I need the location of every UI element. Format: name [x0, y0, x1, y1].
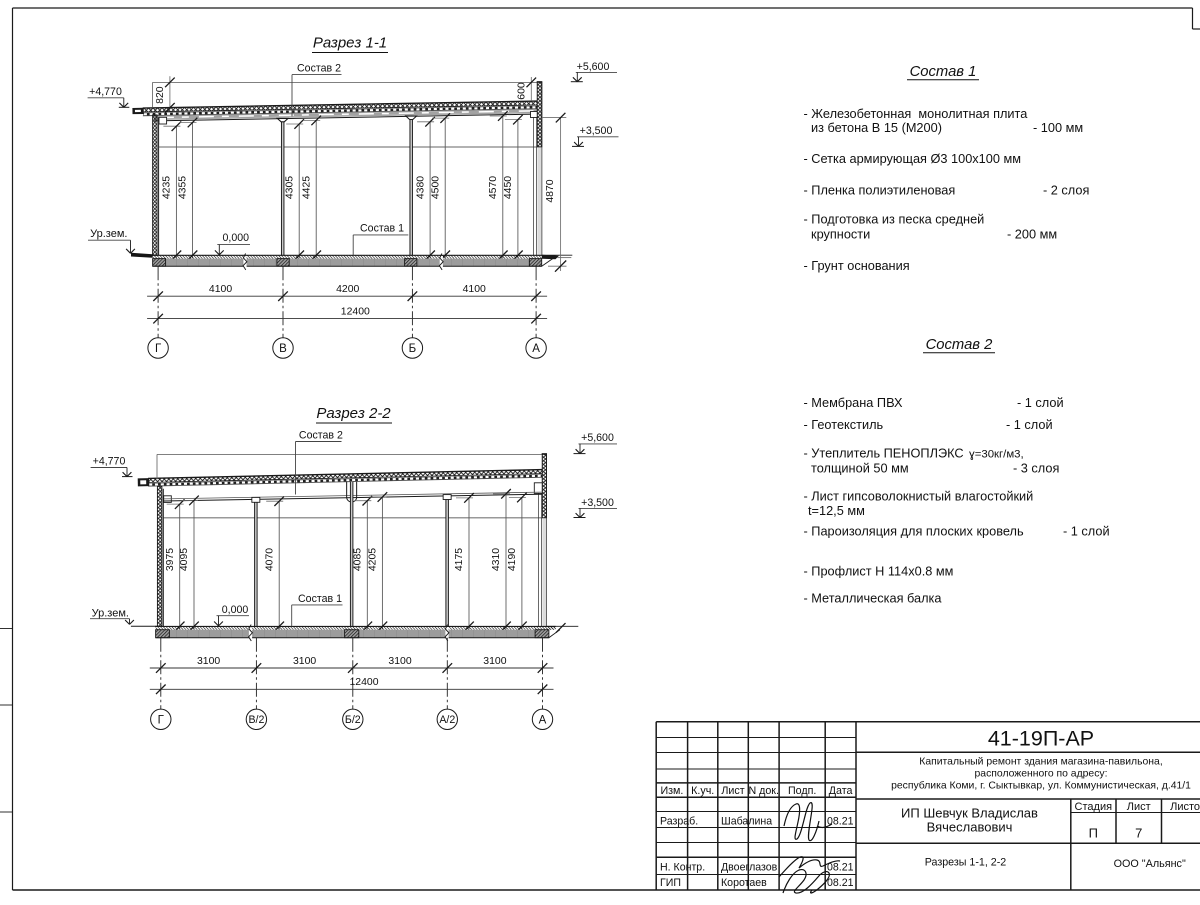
svg-text:3975: 3975: [165, 548, 176, 571]
svg-text:из бетона В 15 (М200): из бетона В 15 (М200): [811, 120, 942, 135]
svg-text:Состав 1: Состав 1: [360, 222, 404, 234]
svg-text:ГИП: ГИП: [660, 877, 681, 889]
svg-text:К.уч.: К.уч.: [691, 785, 714, 797]
svg-text:4200: 4200: [336, 284, 359, 295]
svg-text:расположенного по адресу:: расположенного по адресу:: [975, 769, 1108, 780]
svg-text:Вячеславович: Вячеславович: [927, 820, 1013, 835]
svg-text:08.21: 08.21: [827, 877, 854, 889]
svg-text:- 100 мм: - 100 мм: [1033, 120, 1083, 135]
svg-text:- Пароизоляция для плоских кро: - Пароизоляция для плоских кровель: [804, 524, 1024, 539]
svg-text:Состав 2: Состав 2: [926, 337, 994, 353]
svg-text:Разрез 1-1: Разрез 1-1: [313, 35, 387, 52]
svg-text:Г: Г: [155, 343, 162, 355]
svg-text:ООО "Альянс": ООО "Альянс": [1114, 858, 1186, 870]
svg-text:- Сетка армирующая Ø3 100х100: - Сетка армирующая Ø3 100х100 мм: [804, 151, 1022, 166]
svg-text:- Грунт основания: - Грунт основания: [804, 258, 910, 273]
svg-text:Ур.зем.: Ур.зем.: [90, 228, 127, 240]
svg-text:Б/2: Б/2: [345, 714, 361, 726]
svg-text:4095: 4095: [179, 548, 190, 571]
svg-text:- Подготовка из песка средней: - Подготовка из песка средней: [804, 212, 985, 227]
svg-text:- Профлист Н 114х0.8 мм: - Профлист Н 114х0.8 мм: [804, 564, 954, 579]
svg-text:Лист: Лист: [721, 785, 744, 797]
svg-text:4305: 4305: [284, 176, 295, 199]
svg-text:4380: 4380: [415, 176, 426, 199]
svg-text:+5,600: +5,600: [581, 432, 614, 444]
svg-text:3100: 3100: [483, 656, 506, 667]
svg-text:Шабалина: Шабалина: [721, 815, 772, 827]
svg-text:Подп.: Подп.: [788, 785, 816, 797]
svg-text:3100: 3100: [293, 656, 316, 667]
svg-text:+4,770: +4,770: [89, 86, 122, 98]
svg-text:7: 7: [1135, 826, 1142, 841]
svg-text:- 2 слоя: - 2 слоя: [1043, 183, 1089, 198]
svg-text:- Утеплитель ПЕНОПЛЭКС: - Утеплитель ПЕНОПЛЭКС: [804, 446, 964, 461]
svg-text:Состав 2: Состав 2: [299, 430, 343, 442]
svg-text:- 1 слой: - 1 слой: [1063, 524, 1110, 539]
svg-text:Коротаев: Коротаев: [721, 877, 767, 889]
svg-text:- Геотекстиль: - Геотекстиль: [804, 417, 884, 432]
svg-text:- 200 мм: - 200 мм: [1007, 227, 1057, 242]
svg-text:П: П: [1089, 826, 1098, 841]
svg-text:крупности: крупности: [811, 227, 870, 242]
svg-text:4870: 4870: [545, 179, 556, 202]
svg-text:600: 600: [517, 82, 528, 100]
svg-text:41-19П-АР: 41-19П-АР: [988, 727, 1094, 751]
svg-text:Состав 1: Состав 1: [298, 593, 342, 605]
svg-text:А/2: А/2: [439, 714, 455, 726]
svg-text:0,000: 0,000: [223, 232, 250, 244]
svg-text:Разрезы 1-1, 2-2: Разрезы 1-1, 2-2: [925, 857, 1007, 869]
svg-text:+3,500: +3,500: [581, 497, 614, 509]
svg-text:ИП Шевчук Владислав: ИП Шевчук Владислав: [901, 806, 1038, 821]
svg-text:4085: 4085: [353, 548, 364, 571]
svg-text:Дата: Дата: [829, 785, 853, 797]
svg-text:Изм.: Изм.: [660, 785, 683, 797]
svg-text:Листов: Листов: [1170, 801, 1200, 813]
svg-text:N док.: N док.: [748, 785, 779, 797]
svg-text:4310: 4310: [491, 548, 502, 571]
svg-text:Стадия: Стадия: [1075, 801, 1113, 813]
svg-text:4190: 4190: [507, 548, 518, 571]
svg-text:4355: 4355: [178, 176, 189, 199]
svg-text:республика Коми, г. Сыктывкар,: республика Коми, г. Сыктывкар, ул. Комму…: [891, 780, 1191, 792]
svg-text:t=12,5 мм: t=12,5 мм: [808, 503, 865, 518]
svg-text:3100: 3100: [197, 656, 220, 667]
svg-text:+3,500: +3,500: [580, 125, 613, 137]
svg-text:4425: 4425: [301, 176, 312, 199]
svg-text:12400: 12400: [341, 306, 370, 317]
svg-text:Г: Г: [158, 714, 165, 726]
svg-text:А: А: [532, 343, 540, 355]
svg-text:+5,600: +5,600: [577, 61, 610, 73]
svg-text:4500: 4500: [430, 176, 441, 199]
svg-text:Лист: Лист: [1127, 801, 1151, 813]
svg-text:Ур.зем.: Ур.зем.: [92, 607, 129, 619]
svg-text:Двоеглазов: Двоеглазов: [721, 861, 778, 873]
svg-text:- Металлическая балка: - Металлическая балка: [804, 591, 943, 606]
svg-text:4070: 4070: [264, 548, 275, 571]
svg-text:- Железобетонная монолитная п: - Железобетонная монолитная плита: [804, 106, 1029, 121]
svg-text:- Лист гипсоволокнистый влагос: - Лист гипсоволокнистый влагостойкий: [804, 489, 1034, 504]
svg-text:12400: 12400: [349, 677, 378, 688]
svg-text:0,000: 0,000: [222, 604, 249, 616]
svg-text:Б: Б: [409, 343, 417, 355]
svg-text:4100: 4100: [463, 284, 486, 295]
svg-text:- 3 слоя: - 3 слоя: [1013, 461, 1059, 476]
svg-text:3100: 3100: [388, 656, 411, 667]
svg-text:В/2: В/2: [248, 714, 264, 726]
svg-text:4235: 4235: [162, 176, 173, 199]
svg-text:4175: 4175: [454, 548, 465, 571]
svg-text:+4,770: +4,770: [93, 456, 126, 468]
svg-text:Н. Контр.: Н. Контр.: [660, 861, 705, 873]
svg-text:Состав 2: Состав 2: [297, 62, 341, 74]
svg-text:08.21: 08.21: [827, 815, 854, 827]
svg-text:4450: 4450: [503, 176, 514, 199]
svg-text:4570: 4570: [488, 176, 499, 199]
svg-text:4205: 4205: [368, 548, 379, 571]
svg-text:820: 820: [155, 86, 166, 104]
svg-text:- Пленка полиэтиленовая: - Пленка полиэтиленовая: [804, 183, 956, 198]
svg-text:- 1 слой: - 1 слой: [1006, 417, 1053, 432]
svg-text:В: В: [279, 343, 287, 355]
svg-text:толщиной 50 мм: толщиной 50 мм: [811, 461, 909, 476]
svg-text:Капитальный ремонт здания мага: Капитальный ремонт здания магазина-павил…: [919, 757, 1162, 768]
svg-text:- 1 слой: - 1 слой: [1017, 395, 1064, 410]
svg-text:Состав 1: Состав 1: [910, 64, 977, 80]
svg-text:Разрез 2-2: Разрез 2-2: [316, 405, 391, 422]
svg-text:- Мембрана ПВХ: - Мембрана ПВХ: [804, 395, 904, 410]
svg-text:4100: 4100: [209, 284, 232, 295]
svg-text:Разраб.: Разраб.: [660, 815, 698, 827]
svg-text:А: А: [539, 714, 547, 726]
svg-text:ɣ=30кг/м3,: ɣ=30кг/м3,: [969, 449, 1024, 461]
